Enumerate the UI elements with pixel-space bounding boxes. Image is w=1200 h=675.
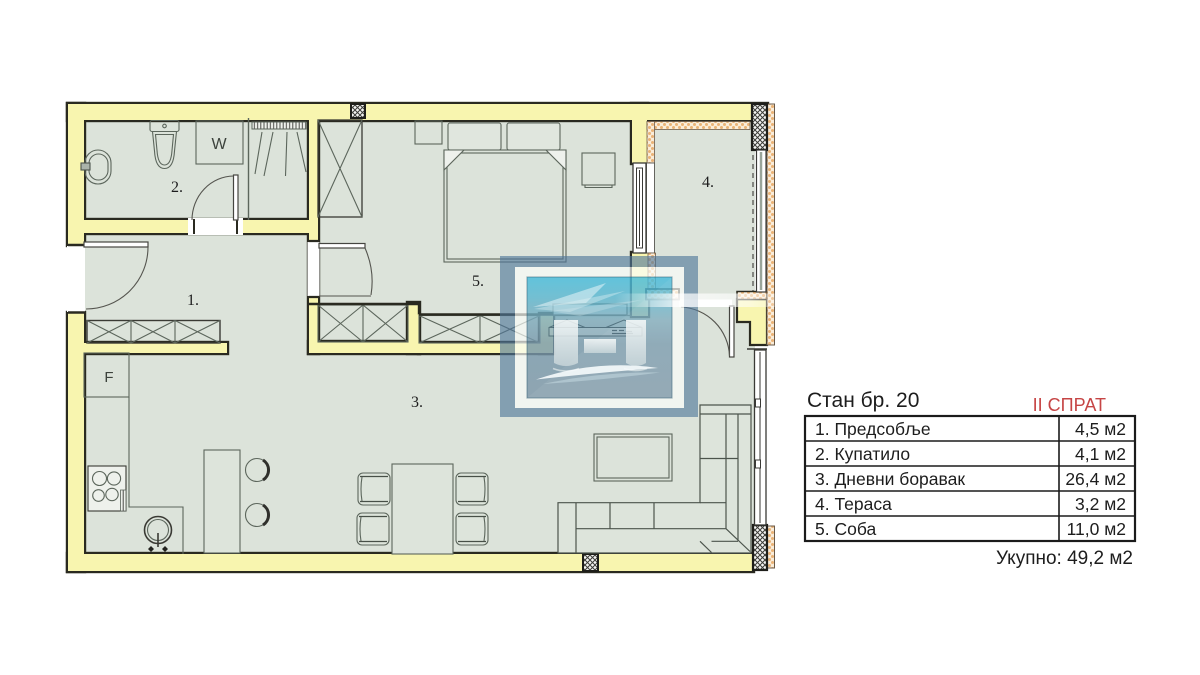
svg-text:F: F [104, 369, 113, 386]
svg-text:4. Тераса: 4. Тераса [815, 494, 892, 514]
svg-text:3.: 3. [411, 394, 423, 411]
svg-text:W: W [211, 136, 227, 153]
svg-text:4,5 м2: 4,5 м2 [1075, 419, 1126, 439]
svg-text:3,2 м2: 3,2 м2 [1075, 494, 1126, 514]
svg-text:26,4 м2: 26,4 м2 [1065, 469, 1126, 489]
svg-text:II СПРАТ: II СПРАТ [1033, 395, 1106, 415]
svg-text:4.: 4. [702, 174, 714, 191]
svg-text:5. Соба: 5. Соба [815, 519, 876, 539]
svg-text:Стан бр. 20: Стан бр. 20 [807, 389, 919, 412]
svg-text:Укупно: 49,2 м2: Укупно: 49,2 м2 [996, 548, 1133, 569]
svg-text:2. Купатило: 2. Купатило [815, 444, 910, 464]
svg-text:1.: 1. [187, 292, 199, 309]
svg-text:11,0 м2: 11,0 м2 [1067, 519, 1126, 539]
svg-text:5.: 5. [472, 273, 484, 290]
svg-text:4,1 м2: 4,1 м2 [1075, 444, 1126, 464]
svg-text:3. Дневни боравак: 3. Дневни боравак [815, 469, 965, 489]
svg-text:1. Предсобље: 1. Предсобље [815, 419, 931, 439]
svg-text:2.: 2. [171, 179, 183, 196]
